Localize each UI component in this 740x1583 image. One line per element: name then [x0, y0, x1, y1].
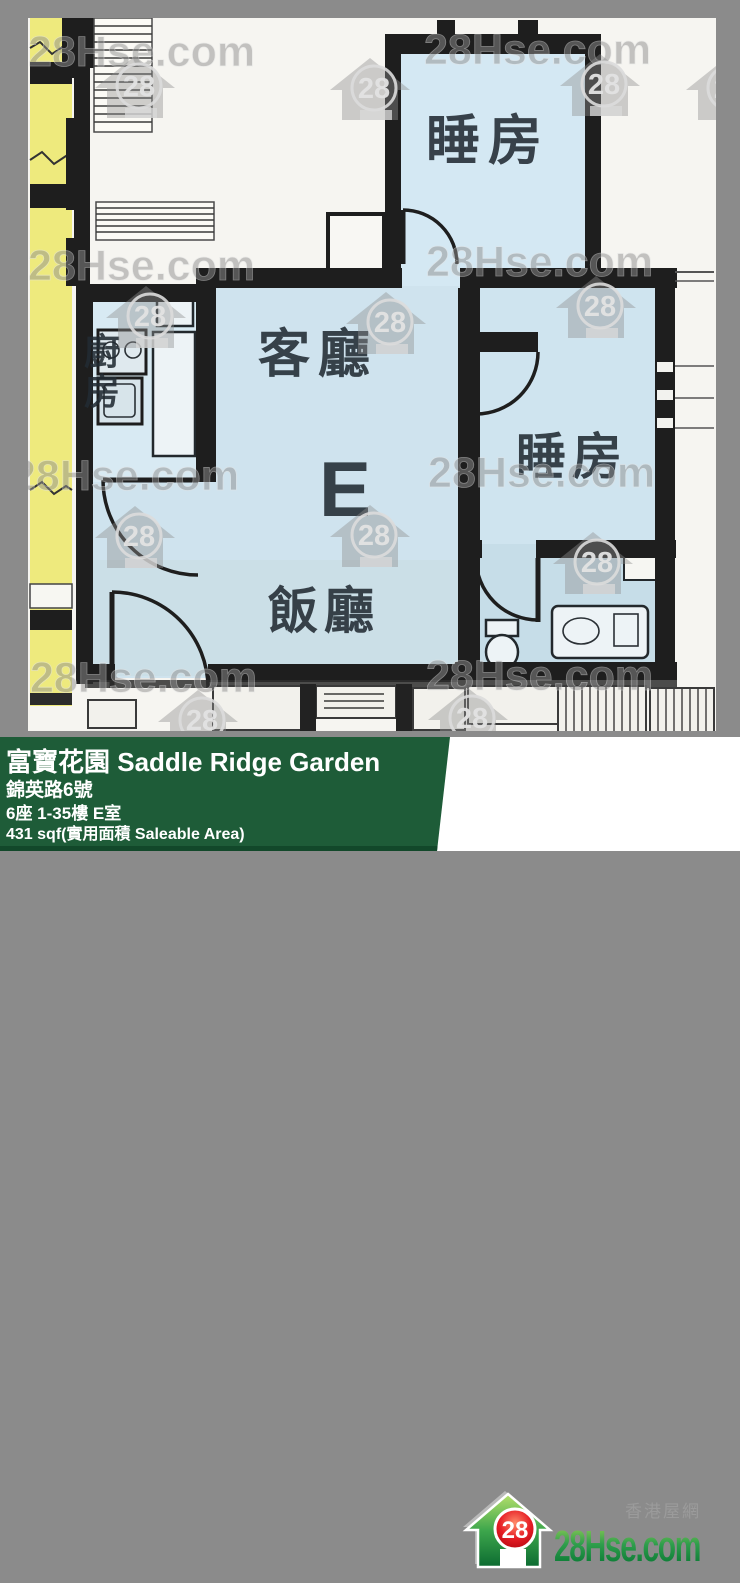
toilet-tank — [486, 620, 518, 636]
watermark-text: 28Hse.com — [426, 238, 653, 286]
footer: 富寶花園 Saddle Ridge Garden 錦英路6號 6座 1-35樓 … — [0, 737, 740, 851]
property-area: 431 sqf(實用面積 Saleable Area) — [6, 820, 245, 844]
svg-text:28: 28 — [186, 705, 218, 731]
28hse-house-icon: 28 — [463, 1491, 550, 1567]
svg-text:28: 28 — [581, 547, 613, 579]
property-title: 富寶花園 Saddle Ridge Garden — [6, 742, 380, 779]
svg-text:28: 28 — [374, 307, 406, 339]
floorplan-image: 睡房 客廳 睡房 飯廳 廚 房 E 28Hse.com 28Hse.com 28… — [28, 18, 716, 731]
label-dining: 飯廳 — [268, 583, 380, 639]
svg-text:28: 28 — [588, 69, 620, 101]
svg-text:28: 28 — [134, 301, 166, 333]
watermark-text: 28Hse.com — [428, 449, 655, 497]
logo-text: 28Hse.com — [554, 1522, 700, 1571]
svg-text:28: 28 — [123, 71, 155, 103]
svg-text:28: 28 — [358, 73, 390, 105]
watermark-text: 28Hse.com — [28, 452, 239, 500]
watermark-text: 28Hse.com — [28, 242, 255, 290]
label-kitchen-char1: 廚 — [84, 331, 120, 372]
svg-text:28: 28 — [584, 291, 616, 323]
property-info-bar: 富寶花園 Saddle Ridge Garden 錦英路6號 6座 1-35樓 … — [0, 737, 740, 851]
28hse-logo: 28 香港屋網 28Hse.com — [462, 1481, 722, 1583]
svg-text:28: 28 — [714, 73, 716, 105]
site-cn-name: 香港屋網 — [625, 1502, 701, 1521]
svg-text:28: 28 — [123, 521, 155, 553]
logo-badge: 28 — [502, 1517, 529, 1544]
watermark-text: 28Hse.com — [426, 652, 653, 700]
label-kitchen-char2: 房 — [84, 371, 120, 412]
neighbor-strip — [30, 18, 78, 706]
svg-text:28: 28 — [456, 703, 488, 731]
label-bedroom-top: 睡房 — [426, 111, 550, 171]
closet-box — [328, 214, 384, 270]
watermark-text: 28Hse.com — [30, 654, 257, 702]
svg-text:28: 28 — [358, 520, 390, 552]
property-address: 錦英路6號 — [6, 775, 93, 802]
watermark-house-icon: 28 — [686, 58, 716, 120]
